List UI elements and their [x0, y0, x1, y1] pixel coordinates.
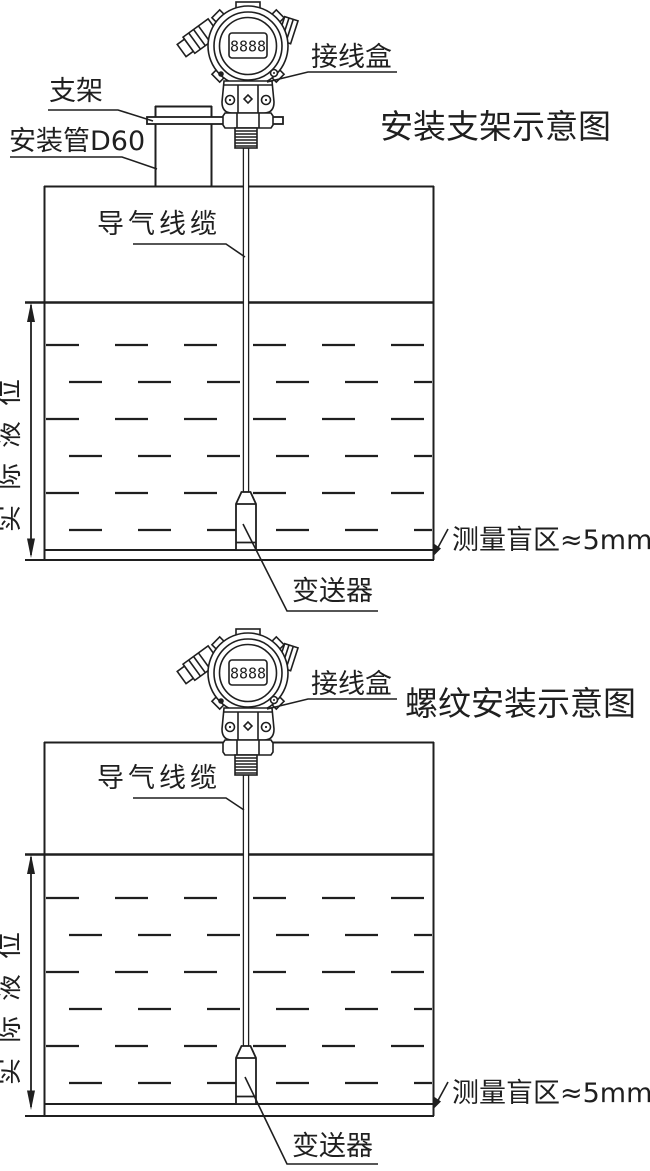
air-cable-top [243, 148, 248, 492]
probe-top [236, 492, 256, 550]
title-bracket-diagram: 安装支架示意图 [380, 110, 611, 145]
actual-level-label-top: 实际液位 [0, 358, 26, 538]
threaded-diagram [25, 629, 448, 1164]
tank-bottom-diagram [25, 742, 434, 1116]
blind-zone-label-bottom: 测量盲区≈5mm [452, 1080, 650, 1108]
junction-box-label-bottom: 接线盒 [311, 671, 392, 699]
tank-top-diagram [25, 186, 434, 560]
blind-zone-arrow-bottom [433, 1082, 449, 1110]
air-cable-label-bottom: 导气线缆 [97, 765, 221, 793]
transmitter-head-bottom [176, 629, 298, 775]
transmitter-head-top [176, 2, 298, 148]
level-dimension-arrow [27, 303, 35, 559]
bracket-label: 支架 [49, 78, 103, 106]
transmitter-label-top: 变送器 [292, 578, 373, 606]
air-cable-label-top: 导气线缆 [97, 211, 221, 239]
transmitter-label-bottom: 变送器 [292, 1133, 373, 1161]
junction-box-label-top: 接线盒 [311, 44, 392, 72]
actual-level-label-bottom: 实际液位 [0, 911, 26, 1091]
mounting-pipe-label: 安装管D60 [9, 128, 145, 156]
level-dimension-arrow [27, 855, 35, 1111]
schematic-page: 8888 [0, 0, 650, 1171]
blind-zone-label-top: 测量盲区≈5mm [452, 527, 650, 555]
air-cable-bottom [243, 775, 248, 1046]
title-threaded-diagram: 螺纹安装示意图 [405, 687, 636, 722]
blind-zone-arrow-top [433, 529, 449, 557]
